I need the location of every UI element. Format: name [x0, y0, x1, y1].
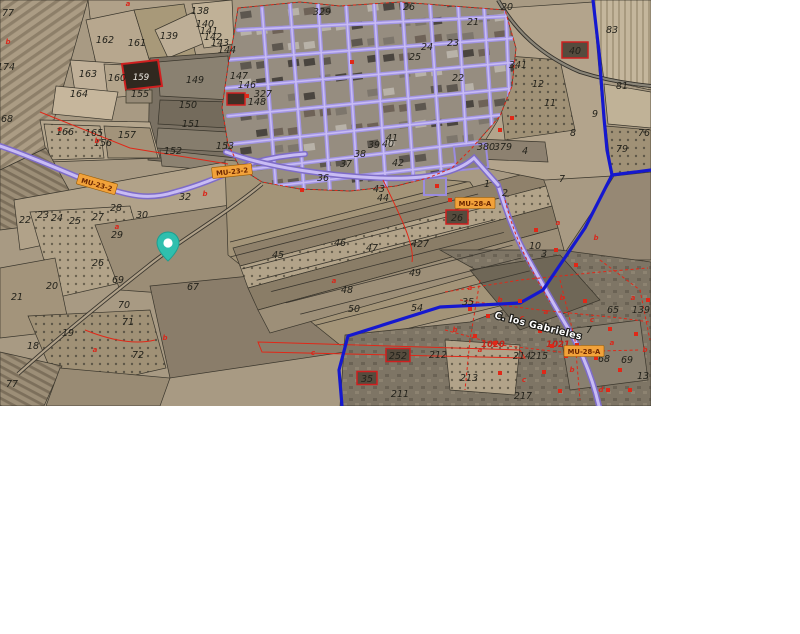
parcel-number-label: 23 [37, 210, 49, 221]
parcel-number-label: 27 [92, 212, 104, 223]
parcel-number-label: 26 [403, 2, 415, 13]
page-canvas: 402635252 771746816216113813914014114214… [0, 0, 800, 634]
subparcel-letter-mark: a [556, 219, 561, 227]
building-mark [468, 307, 472, 311]
building-mark [473, 334, 477, 338]
parcel-number-label: 9 [592, 109, 598, 120]
building-mark [486, 314, 490, 318]
parcel-number-label: 35 [462, 297, 474, 308]
building-mark [534, 228, 538, 232]
parcel-number-label: 252 [389, 351, 407, 362]
parcel-number-label: 174 [0, 62, 15, 73]
building-mark [550, 344, 554, 348]
parcel-number-label: 139 [632, 305, 650, 316]
building-mark [498, 128, 502, 132]
subparcel-letter-mark: a [332, 277, 337, 285]
parcel-number-label: 153 [216, 141, 234, 152]
subparcel-letter-mark: b [162, 334, 167, 342]
building-mark [493, 341, 497, 345]
parcel-number-label: 65 [607, 305, 619, 316]
parcel-number-label: 155 [131, 89, 149, 100]
parcel-number-label: 76 [638, 128, 650, 139]
parcel-number-label: 152 [164, 146, 182, 157]
parcel-number-label: 23 [447, 38, 459, 49]
subparcel-letter-mark: a [478, 346, 483, 354]
parcel-number-label: 40 [569, 46, 581, 57]
parcel-number-label: 77 [2, 8, 14, 19]
parcel-number-label: 20 [501, 2, 513, 13]
parcel-number-label: 67 [187, 282, 199, 293]
parcel-number-label: 380 [477, 142, 495, 153]
building-mark [583, 299, 587, 303]
parcel-number-label: 18 [27, 341, 39, 352]
parcel-number-label: 160 [108, 73, 126, 84]
parcel-number-label: 341 [509, 60, 527, 71]
parcel-number-label: 10 [529, 241, 541, 252]
parcel-number-label: 2 [502, 188, 508, 199]
parcel-number-label: 3 [541, 249, 547, 260]
parcel-number-label: 26 [92, 258, 104, 269]
parcel-number-label: 157 [118, 130, 136, 141]
parcel-number-label: 22 [19, 215, 31, 226]
parcel-number-label: 161 [128, 38, 146, 49]
parcel-number-label: 39 [368, 140, 380, 151]
map-viewport[interactable]: 402635252 771746816216113813914014114214… [0, 0, 651, 406]
building-mark [628, 388, 632, 392]
parcel-number-label: 217 [514, 391, 532, 402]
subparcel-letter-mark: a [115, 223, 120, 231]
parcel-number-label: 47 [366, 243, 378, 254]
parcel-number-label: 138 [191, 6, 209, 17]
parcel-number-label: 20 [46, 281, 58, 292]
parcel-number-label: 4 [522, 146, 528, 157]
parcel-number-label: 19 [62, 328, 74, 339]
road-ref-badge: MU-28-A [455, 198, 495, 209]
subparcel-letter-mark: b [452, 326, 457, 334]
subparcel-letter-mark: a [631, 294, 636, 302]
parcel-number-label: 22 [452, 73, 464, 84]
parcel-number-label: 40 [382, 139, 394, 150]
parcel-number-label: 25 [409, 52, 421, 63]
parcel-number-label: 148 [248, 97, 266, 108]
parcel-number-label: 214 [513, 351, 531, 362]
parcel-number-label: 21 [467, 17, 479, 28]
subparcel-letter-mark: b [569, 366, 574, 374]
parcel-number-label: 50 [348, 304, 360, 315]
building-mark [245, 94, 249, 98]
parcel-number-label: 49 [409, 268, 421, 279]
subparcel-letter-mark: a [544, 308, 549, 316]
building-mark [634, 332, 638, 336]
parcel-number-label: 151 [182, 119, 200, 130]
parcel-number-label: 213 [460, 373, 478, 384]
building-mark [518, 299, 522, 303]
subparcel-letter-mark: b [559, 294, 564, 302]
parcel-number-label: 8 [570, 128, 576, 139]
parcel-number-label: 36 [317, 173, 329, 184]
subparcel-letter-mark: a [610, 339, 615, 347]
parcel-number-label: 7 [559, 174, 565, 185]
parcel-number-label: 139 [160, 31, 178, 42]
parcel-number-label: 35 [361, 374, 373, 385]
parcel-number-label: 38 [354, 149, 366, 160]
parcel-number-label: 215 [530, 351, 548, 362]
building-mark [498, 371, 502, 375]
parcel-number-label: 379 [494, 142, 512, 153]
subparcel-letter-mark: b [5, 38, 10, 46]
parcel-number-label: 150 [179, 100, 197, 111]
parcel-number-label: 83 [606, 25, 618, 36]
parcel-number-label: 329 [313, 7, 331, 18]
building-mark [646, 298, 650, 302]
subparcel-letter-mark: b [202, 190, 207, 198]
subparcel-letter-mark: b [497, 296, 502, 304]
parcel-number-label: 162 [96, 35, 114, 46]
building-mark [618, 368, 622, 372]
parcel-number-label: 24 [421, 42, 433, 53]
subparcel-letter-mark: a [126, 0, 131, 8]
subparcel-letter-mark: b [642, 346, 647, 354]
building-mark [510, 116, 514, 120]
parcel-number-label: 26 [451, 213, 463, 224]
parcel-number-label: 81 [616, 81, 628, 92]
parcel-number-label: 54 [411, 303, 423, 314]
parcel-number-label: 45 [272, 250, 284, 261]
parcel-number-label: 79 [616, 144, 628, 155]
building-mark [300, 188, 304, 192]
subparcel-letter-mark: a [468, 284, 473, 292]
road-ref-badge: MU-28-A [564, 346, 604, 357]
parcel-number-label: 48 [341, 285, 353, 296]
building-mark [350, 60, 354, 64]
parcel-number-label: 30 [136, 210, 148, 221]
parcel-number-label: 24 [51, 213, 63, 224]
svg-text:MU-28-A: MU-28-A [459, 200, 492, 208]
parcel-number-label: 427 [411, 239, 429, 250]
building-mark [606, 388, 610, 392]
parcel-number-label: 212 [429, 350, 447, 361]
parcel-number-label: 46 [334, 238, 346, 249]
parcel-number-label: 69 [112, 275, 124, 286]
subparcel-letter-mark: a [58, 125, 63, 133]
parcel-number-label: 77 [6, 379, 18, 390]
building-mark [554, 248, 558, 252]
subparcel-letter-mark: b [593, 234, 598, 242]
building-mark [608, 327, 612, 331]
parcel-number-label: 11 [544, 98, 556, 109]
building-mark [558, 389, 562, 393]
parcel-number-label: 29 [111, 230, 123, 241]
parcel-number-label: 163 [79, 69, 97, 80]
parcel-number-label: 21 [11, 292, 23, 303]
parcel-number-label: 72 [132, 350, 144, 361]
parcel-number-label: 144 [218, 45, 236, 56]
building-mark [448, 198, 452, 202]
parcel-number-label: 7 [586, 325, 592, 336]
parcel-number-label: 68 [1, 114, 13, 125]
parcel-number-label: 149 [186, 75, 204, 86]
cadastral-map[interactable]: 402635252 771746816216113813914014114214… [0, 0, 651, 406]
subparcel-letter-mark: a [93, 346, 98, 354]
subparcel-letter-mark: b [94, 137, 99, 145]
parcel-number-label: 70 [118, 300, 130, 311]
parcel-number-label: 12 [532, 79, 544, 90]
parcel-number-label: 1 [484, 179, 490, 190]
highlighted-parcel-number: 159 [133, 73, 149, 83]
parcel-number-label: 25 [69, 216, 81, 227]
parcel-number-label: 211 [391, 389, 409, 400]
parcel-number-label: 164 [70, 89, 88, 100]
parcel-number-label: 28 [110, 203, 122, 214]
parcel-number-label: 32 [179, 192, 191, 203]
parcel-number-label: 69 [621, 355, 633, 366]
parcel-number-label: 13 [637, 371, 649, 382]
parcel-number-label: 42 [392, 158, 404, 169]
parcel-number-label: 44 [377, 193, 389, 204]
svg-text:MU-28-A: MU-28-A [568, 348, 601, 356]
building-mark [574, 263, 578, 267]
parcel-number-label: 71 [122, 317, 134, 328]
building-mark [435, 184, 439, 188]
parcel-number-label: 37 [340, 159, 352, 170]
building-mark [542, 370, 546, 374]
